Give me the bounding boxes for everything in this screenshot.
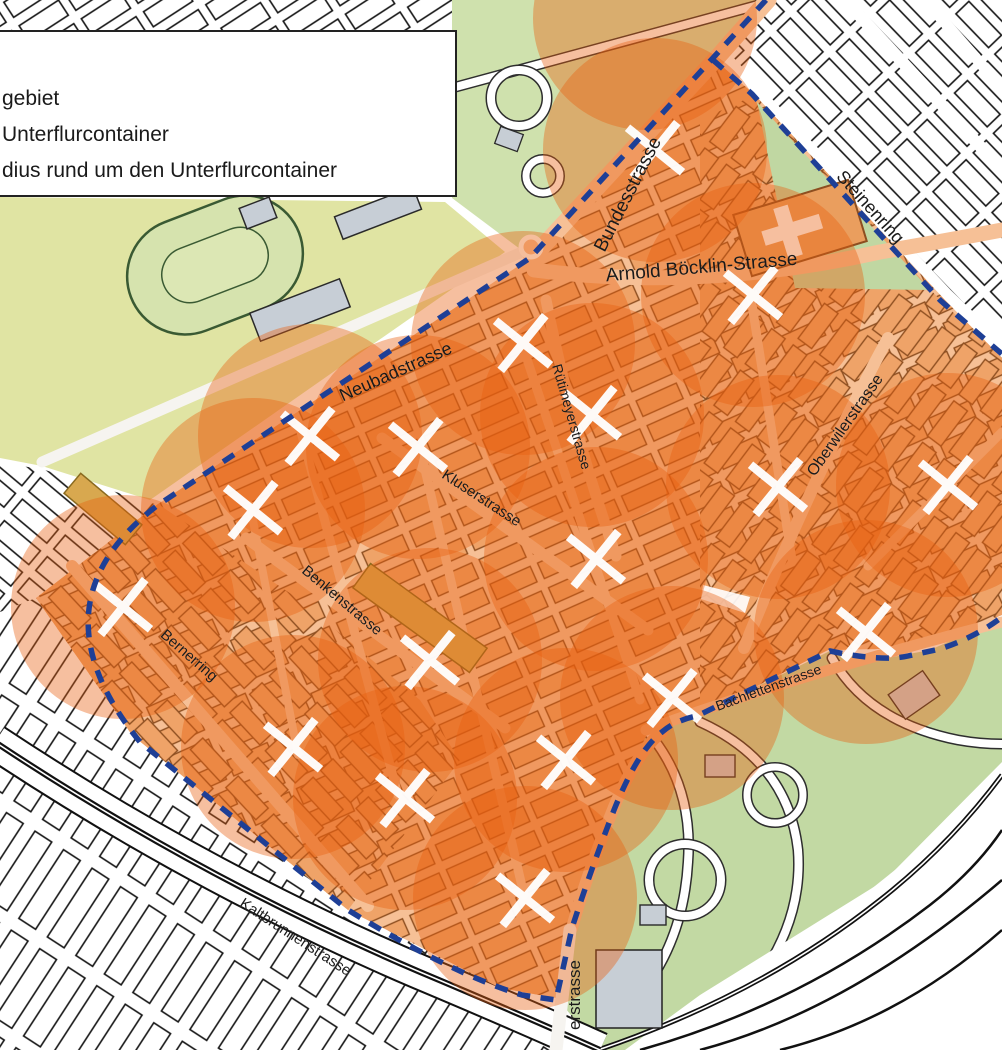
street-label: erstrasse	[565, 960, 584, 1030]
city-map-canvas: BundesstrasseSteinenringArnold Böcklin-S…	[0, 0, 1002, 1050]
legend: gebiet Unterflurcontainer dius rund um d…	[0, 31, 456, 196]
legend-item-container: Unterflurcontainer	[2, 123, 169, 146]
legend-item-radius: dius rund um den Unterflurcontainer	[2, 159, 337, 182]
legend-item-area: gebiet	[2, 87, 59, 110]
zoo-building-3	[640, 905, 666, 925]
